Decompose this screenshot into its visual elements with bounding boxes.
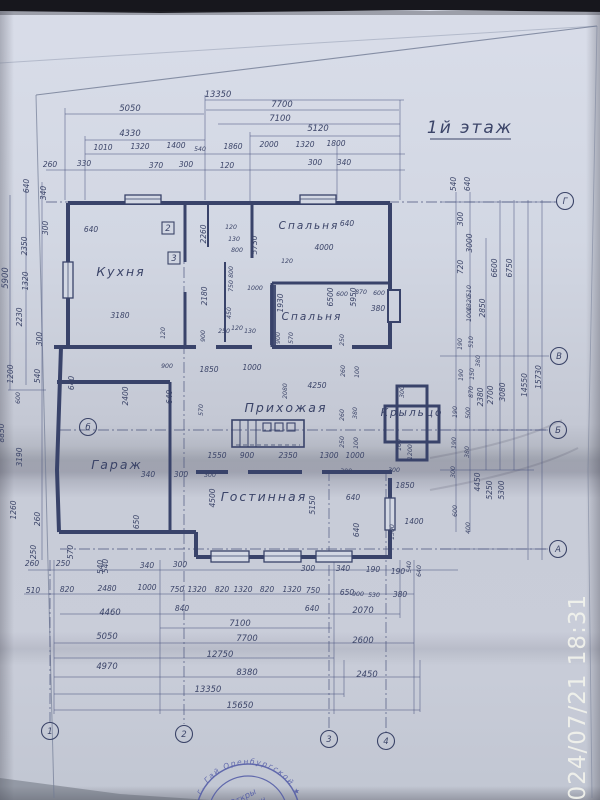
dim-label: 540 xyxy=(449,177,458,192)
dim-label: 340 xyxy=(336,564,351,573)
dim-label: 250 xyxy=(339,334,346,346)
dim-label: 2230 xyxy=(15,307,24,326)
dim-label: 380 xyxy=(371,304,386,313)
dim-label: 640 xyxy=(352,523,361,538)
dim-label: 900 xyxy=(240,451,255,460)
dim-label: 1000 xyxy=(242,363,261,372)
dim-label: 130 xyxy=(228,236,240,243)
dim-label: 2450 xyxy=(356,669,377,679)
dim-label: 400 xyxy=(465,522,472,534)
grid-axis-label: б xyxy=(85,423,90,433)
dim-label: 190 xyxy=(366,565,381,574)
dim-label: 1550 xyxy=(207,451,226,460)
dim-label: 300 xyxy=(340,468,352,475)
dim-label: 340 xyxy=(141,470,156,479)
dim-label: 300 xyxy=(388,467,400,474)
dim-label: 14550 xyxy=(520,373,529,397)
dim-label: 260 xyxy=(43,160,58,169)
room-label: Гостинная xyxy=(221,489,307,504)
dim-label: 100 xyxy=(354,366,361,378)
dim-label: 800 xyxy=(231,247,243,254)
dim-label: 750 xyxy=(228,280,235,292)
dim-label: 5730 xyxy=(250,235,259,254)
dim-label: 300 xyxy=(174,470,189,479)
dim-label: 120 xyxy=(220,161,235,170)
room-label: Прихожая xyxy=(245,400,328,415)
dim-label: 1010 xyxy=(93,143,112,152)
dim-label: 1320 xyxy=(21,271,30,290)
dim-label: 900 xyxy=(352,591,364,598)
dim-label: 4500 xyxy=(208,488,217,507)
dim-label: 820 xyxy=(260,585,275,594)
dim-label: 820 xyxy=(60,585,75,594)
dim-label: 900 xyxy=(275,332,282,344)
dim-label: 120 xyxy=(225,224,237,231)
grid-axis-label: 4 xyxy=(383,737,388,747)
dim-label: 2350 xyxy=(20,236,29,255)
dim-label: 120 xyxy=(231,325,243,332)
dim-label: 7100 xyxy=(269,113,290,123)
dim-label: 1320 xyxy=(187,585,206,594)
dim-label: 1300 xyxy=(319,451,338,460)
dim-label: 13350 xyxy=(205,89,232,99)
dim-label: 250 xyxy=(56,559,71,568)
dim-label: 2480 xyxy=(97,584,116,593)
dim-label: 6500 xyxy=(326,287,335,306)
dim-label: 1320 xyxy=(282,585,301,594)
grid-axis-label: В xyxy=(556,352,562,362)
dim-label: 500 xyxy=(465,407,472,419)
dim-label: 2350 xyxy=(278,451,297,460)
dim-label: 300 xyxy=(456,212,465,227)
dim-label: 3000 xyxy=(465,233,474,252)
dim-label: 900 xyxy=(161,363,173,370)
grid-axis-label: 2 xyxy=(165,224,170,234)
dim-label: 5150 xyxy=(308,495,317,514)
dim-label: 190 xyxy=(457,338,464,350)
dim-label: 2400 xyxy=(121,386,130,405)
dim-label: 2070 xyxy=(352,605,373,615)
dim-label: 300 xyxy=(204,472,216,479)
dim-label: 600 xyxy=(373,290,385,297)
dim-label: 120 xyxy=(160,327,167,339)
dim-label: 5300 xyxy=(497,480,506,499)
dim-label: 8380 xyxy=(236,667,257,677)
dim-label: 4000 xyxy=(314,243,333,252)
dim-label: 1400 xyxy=(404,517,423,526)
dim-label: 2260 xyxy=(199,224,208,243)
dim-label: 250 xyxy=(29,545,38,560)
dim-label: 570 xyxy=(66,545,75,560)
dim-label: 2850 xyxy=(478,298,487,317)
dim-label: 3080 xyxy=(498,382,507,401)
dim-label: 600 xyxy=(15,392,22,404)
dim-label: 510 xyxy=(468,336,475,348)
dim-label: 130 xyxy=(244,328,256,335)
dim-label: 5250 xyxy=(485,480,494,499)
dim-label: 2180 xyxy=(200,286,209,305)
dim-label: 1200 xyxy=(6,364,15,383)
dim-label: 1930 xyxy=(276,293,285,312)
dim-label: 2080 xyxy=(282,383,289,399)
dim-label: 260 xyxy=(340,365,347,377)
dim-label: 840 xyxy=(175,604,190,613)
dim-label: 1000 xyxy=(137,583,156,592)
dim-label: 750 xyxy=(170,585,185,594)
dim-label: 640 xyxy=(346,493,361,502)
dim-label: 190 xyxy=(458,369,465,381)
dim-label: 380 xyxy=(352,407,359,419)
dim-label: 6750 xyxy=(505,258,514,277)
dim-label: 540 xyxy=(96,560,105,575)
dim-label: 1850 xyxy=(199,365,218,374)
dim-label: 4460 xyxy=(99,607,120,617)
room-label: Спальня xyxy=(279,220,340,232)
dim-label: 1260 xyxy=(9,500,18,519)
dim-label: 2000 xyxy=(259,140,278,149)
dim-label: 3190 xyxy=(15,447,24,466)
dim-label: 260 xyxy=(33,512,42,527)
dim-label: 300 xyxy=(41,221,50,236)
dim-label: 2380 xyxy=(476,387,485,406)
dim-label: 640 xyxy=(165,390,174,405)
dim-label: 4250 xyxy=(307,381,326,390)
dim-label: 650 xyxy=(132,515,141,530)
dim-label: 300 xyxy=(450,466,457,478)
dim-label: 1500 xyxy=(389,524,396,540)
dim-label: 190 xyxy=(391,567,406,576)
dim-label: 340 xyxy=(39,186,48,201)
dim-label: 13350 xyxy=(195,684,222,694)
dim-label: 250 xyxy=(218,328,230,335)
room-label: Гараж xyxy=(91,457,142,472)
dim-label: 5900 xyxy=(0,267,10,288)
dim-label: 340 xyxy=(140,561,155,570)
grid-axis-label: 3 xyxy=(326,735,331,745)
dim-label: 870 xyxy=(355,289,367,296)
dim-label: 750 xyxy=(306,586,321,595)
dim-label: 600 xyxy=(452,505,459,517)
room-label: Крыльцо xyxy=(381,407,444,419)
grid-axis-label: Б xyxy=(555,426,561,436)
top-band-soft xyxy=(0,11,600,15)
grid-axis-label: 3 xyxy=(171,254,176,264)
dim-label: 1200 xyxy=(407,444,414,460)
dim-label: 510 xyxy=(26,586,41,595)
dim-label: 340 xyxy=(337,158,352,167)
dim-label: 5050 xyxy=(119,103,140,113)
dim-label: 250 xyxy=(339,436,346,448)
dim-label: 190 xyxy=(452,406,459,418)
dim-label: 640 xyxy=(84,225,99,234)
dim-label: 370 xyxy=(149,161,164,170)
dim-label: 2700 xyxy=(486,385,495,404)
floorplan-drawing: 1й этаж 13350505077007100433051201010132… xyxy=(0,0,600,800)
dim-label: 570 xyxy=(198,404,205,416)
floor-title: 1й этаж xyxy=(427,118,513,138)
dim-label: 1850 xyxy=(395,481,414,490)
dim-label: 870 xyxy=(468,386,475,398)
dim-label: 540 xyxy=(406,561,413,573)
dim-label: 100 xyxy=(353,437,360,449)
room-label: Спальня xyxy=(282,311,343,323)
dim-label: 1800 xyxy=(326,139,345,148)
left-edge-shadow xyxy=(0,0,14,800)
dim-label: 640 xyxy=(22,179,31,194)
dim-label: 1320 xyxy=(130,142,149,151)
dim-label: 5120 xyxy=(307,123,328,133)
dim-label: 190 xyxy=(451,437,458,449)
dim-label: 3180 xyxy=(110,311,129,320)
dim-label: 1000 xyxy=(466,306,473,322)
grid-axis-label: 1 xyxy=(47,727,52,737)
dim-label: 300 xyxy=(399,386,406,398)
dim-label: 6600 xyxy=(490,258,499,277)
dim-label: 7100 xyxy=(229,618,250,628)
photo-of-floorplan: { "photo": { "timestamp": "2024/07/21 18… xyxy=(0,0,600,800)
dim-label: 530 xyxy=(368,592,380,599)
dim-label: 380 xyxy=(464,446,471,458)
dim-label: 5050 xyxy=(96,631,117,641)
dim-label: 820 xyxy=(215,585,230,594)
dim-label: 120 xyxy=(281,258,293,265)
fold-crease-shadow-2 xyxy=(0,632,600,666)
dim-label: 15650 xyxy=(227,700,254,710)
dim-label: 7700 xyxy=(236,633,257,643)
room-label: Кухня xyxy=(96,264,145,279)
dim-label: 640 xyxy=(416,565,423,577)
dim-label: 300 xyxy=(179,160,194,169)
dim-label: 260 xyxy=(25,559,40,568)
dim-label: 1860 xyxy=(223,142,242,151)
dim-label: 300 xyxy=(301,564,316,573)
dim-label: 1000 xyxy=(247,285,263,292)
dim-label: 900 xyxy=(200,330,207,342)
dim-label: 15730 xyxy=(534,365,543,389)
dim-label: 800 xyxy=(228,266,235,278)
dim-label: 7700 xyxy=(271,99,292,109)
dim-label: 380 xyxy=(475,355,482,367)
dim-label: 4970 xyxy=(96,661,117,671)
grid-axis-label: А xyxy=(554,545,561,555)
dim-label: 330 xyxy=(77,159,92,168)
dim-label: 640 xyxy=(340,219,355,228)
dim-label: 160 xyxy=(396,439,403,451)
dim-label: 540 xyxy=(33,369,42,384)
dim-label: 1320 xyxy=(295,140,314,149)
dim-label: 540 xyxy=(194,146,206,153)
dim-label: 12750 xyxy=(207,649,234,659)
dim-label: 2600 xyxy=(352,635,373,645)
dim-label: 300 xyxy=(35,332,44,347)
dim-label: 260 xyxy=(339,409,346,421)
dim-label: 640 xyxy=(67,376,76,391)
dim-label: 300 xyxy=(308,158,323,167)
dim-label: 640 xyxy=(305,604,320,613)
dim-label: 300 xyxy=(173,560,188,569)
dim-label: 1000 xyxy=(345,451,364,460)
dim-label: 8850 xyxy=(0,423,6,442)
camera-timestamp: 2024/07/21 18:31 xyxy=(565,594,591,800)
dim-label: 1400 xyxy=(166,141,185,150)
grid-axis-label: 2 xyxy=(181,730,186,740)
dim-label: 150 xyxy=(469,368,476,380)
dim-label: 640 xyxy=(463,177,472,192)
dim-label: 720 xyxy=(456,260,465,275)
dim-label: 570 xyxy=(288,332,295,344)
dim-label: 4330 xyxy=(119,128,140,138)
dim-label: 4450 xyxy=(473,472,482,491)
dim-label: 600 xyxy=(336,291,348,298)
dim-label: 1320 xyxy=(233,585,252,594)
dim-label: 450 xyxy=(226,307,233,319)
dim-label: 380 xyxy=(393,590,408,599)
